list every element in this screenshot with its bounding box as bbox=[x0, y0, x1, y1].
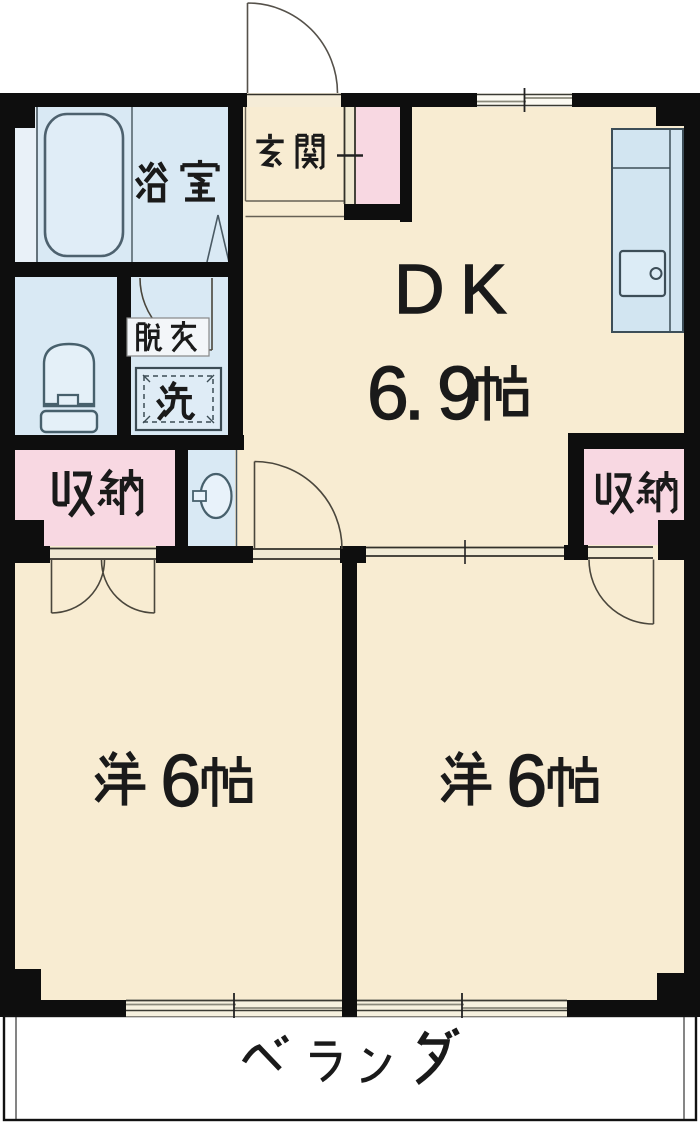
svg-text:6: 6 bbox=[507, 741, 548, 822]
svg-text:6: 6 bbox=[367, 351, 409, 435]
svg-text:D: D bbox=[394, 250, 445, 328]
svg-text:6: 6 bbox=[161, 741, 202, 822]
svg-text:K: K bbox=[460, 250, 507, 328]
svg-text:9: 9 bbox=[437, 351, 479, 435]
svg-text:.: . bbox=[404, 351, 425, 435]
